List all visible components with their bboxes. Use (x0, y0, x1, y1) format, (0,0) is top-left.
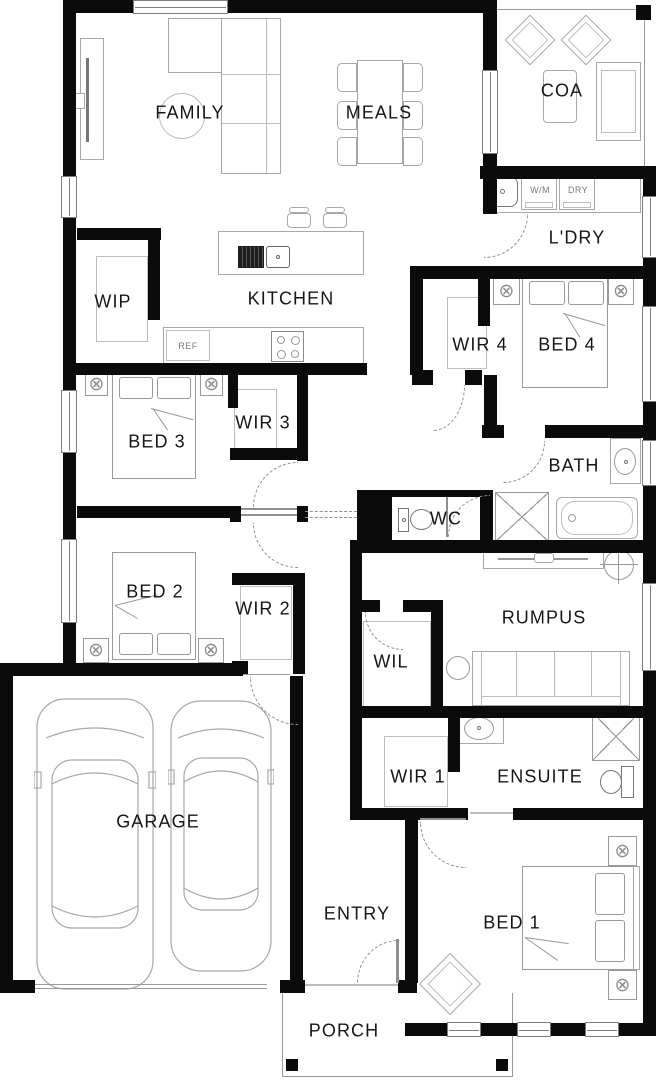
wall (405, 818, 418, 983)
door-swing-arc (357, 940, 399, 983)
room-label-kitchen: KITCHEN (248, 289, 335, 310)
table-cross (600, 564, 638, 565)
wall (0, 663, 13, 993)
shower (592, 712, 640, 761)
window (642, 306, 656, 402)
dining-chair (337, 63, 357, 92)
toilet-dot (402, 518, 406, 522)
bedside-table (200, 373, 223, 396)
wall (410, 266, 423, 375)
wall (350, 545, 362, 820)
wall (230, 506, 241, 522)
sink-dot (276, 255, 280, 259)
bed (522, 274, 608, 388)
wall (228, 375, 238, 408)
round-table (604, 550, 634, 580)
door-leaf (396, 939, 399, 983)
window (482, 70, 498, 154)
room-label-wip: WIP (94, 292, 131, 313)
wall (480, 166, 656, 179)
entry-sill (305, 984, 398, 986)
room-label-bed3: BED 3 (128, 432, 186, 453)
bulkhead-line (305, 517, 357, 518)
porch-post (286, 1059, 298, 1071)
room-label-wir3: WIR 3 (235, 413, 291, 434)
door-swing-arc (253, 462, 298, 507)
coa-edge (644, 9, 645, 167)
bedside-table (198, 638, 224, 663)
media-box (534, 553, 554, 563)
dining-chair (403, 137, 423, 166)
outdoor-sofa (596, 62, 641, 141)
door-head (243, 674, 290, 675)
wall (230, 448, 308, 460)
wall (483, 179, 497, 214)
coa-post (636, 5, 651, 20)
room-label-wir2: WIR 2 (235, 599, 291, 620)
wall (350, 540, 643, 553)
room-label-family: FAMILY (155, 103, 224, 124)
bed-headboard (633, 866, 640, 970)
window (585, 1022, 619, 1037)
bedside-table (608, 970, 637, 1000)
wall (483, 13, 497, 70)
door-leaf (420, 818, 466, 820)
room-label-bed2: BED 2 (126, 582, 184, 603)
washing-machine: W/M (521, 177, 557, 210)
window (61, 176, 77, 218)
wall (297, 506, 308, 522)
car-icon (168, 698, 274, 974)
wall (0, 980, 35, 993)
room-label-meals: MEALS (346, 103, 413, 124)
wall (350, 706, 643, 718)
window (133, 0, 228, 14)
window (517, 1022, 551, 1037)
room-label-wil: WIL (373, 652, 408, 673)
wall (465, 370, 482, 385)
wall (513, 808, 643, 820)
sofa (472, 651, 630, 706)
car-icon (34, 696, 156, 992)
basin-dot (624, 460, 628, 464)
garage-door-line (35, 984, 267, 985)
wall (412, 370, 433, 385)
dryer-label: DRY (568, 185, 588, 195)
door-swing-arc (253, 523, 298, 568)
toilet-bowl (600, 770, 622, 794)
wall (478, 279, 490, 326)
coa-edge (497, 9, 637, 10)
toilet-cistern (621, 766, 634, 798)
wall (77, 506, 230, 518)
room-label-bath: BATH (548, 456, 599, 477)
dining-chair (403, 63, 423, 92)
room-label-wir1: WIR 1 (390, 767, 446, 788)
side-table (446, 656, 470, 680)
window (642, 583, 656, 671)
wall (0, 663, 243, 676)
room-label-ensuite: ENSUITE (497, 767, 583, 788)
fridge-label: REF (178, 341, 197, 351)
wardrobe-shelf (240, 586, 292, 660)
room-label-garage: GARAGE (116, 812, 200, 833)
sink-drainer (238, 246, 264, 268)
tap-dot (500, 189, 505, 194)
porch-post (496, 1059, 508, 1071)
window (61, 390, 77, 453)
room-label-entry: ENTRY (324, 904, 390, 925)
room-label-wir4: WIR 4 (452, 335, 508, 356)
outdoor-chair (561, 15, 612, 66)
stool (323, 213, 347, 228)
basin-dot (477, 726, 481, 730)
room-label-coa: COA (541, 81, 583, 102)
cooktop (271, 331, 304, 362)
bedside-table (608, 836, 637, 866)
door-swing-arc (433, 385, 465, 431)
wall (63, 0, 497, 13)
room-label-rumpus: RUMPUS (502, 608, 587, 629)
wall (410, 266, 643, 279)
stool (325, 207, 345, 213)
wall (280, 980, 305, 993)
bedside-table (608, 278, 634, 305)
room-label-porch: PORCH (309, 1021, 380, 1042)
bed (112, 371, 196, 479)
shower (495, 492, 549, 542)
wall (545, 425, 643, 438)
wall (293, 573, 305, 674)
garage-door-line (35, 988, 267, 989)
room-label-bed4: BED 4 (538, 335, 596, 356)
wall (431, 600, 443, 718)
door-swing-arc (503, 441, 545, 483)
tv-screen (86, 58, 89, 142)
window (642, 196, 656, 258)
stool (287, 213, 311, 228)
outdoor-chair (505, 15, 556, 66)
room-label-wc: WC (430, 509, 462, 530)
wall (63, 363, 367, 375)
bulkhead-line (305, 511, 357, 512)
dining-chair (337, 137, 357, 166)
wall (482, 425, 504, 438)
wall (77, 228, 161, 240)
washer-label: W/M (530, 185, 550, 195)
bedside-table (85, 373, 108, 396)
room-label-bed1: BED 1 (483, 913, 541, 934)
sofa-main (221, 18, 281, 174)
bath-drain (568, 514, 576, 522)
wall (362, 600, 380, 612)
bed (112, 552, 196, 660)
bedside-table (83, 638, 109, 663)
stool (289, 207, 309, 213)
door-leaf (241, 514, 297, 516)
wall (148, 240, 160, 320)
door-leaf (241, 508, 297, 510)
door-swing-arc (420, 822, 466, 868)
door-sill (470, 812, 513, 814)
window (642, 440, 656, 486)
room-label-laundry: L'DRY (549, 228, 606, 249)
wall (448, 706, 460, 772)
window (61, 539, 77, 623)
floor-plan: W/M DRY REF (0, 0, 656, 1080)
sofa-chaise (168, 18, 222, 73)
window (447, 1022, 481, 1037)
dryer: DRY (559, 177, 595, 210)
bedside-table (493, 278, 520, 305)
door-swing-arc (484, 214, 528, 258)
